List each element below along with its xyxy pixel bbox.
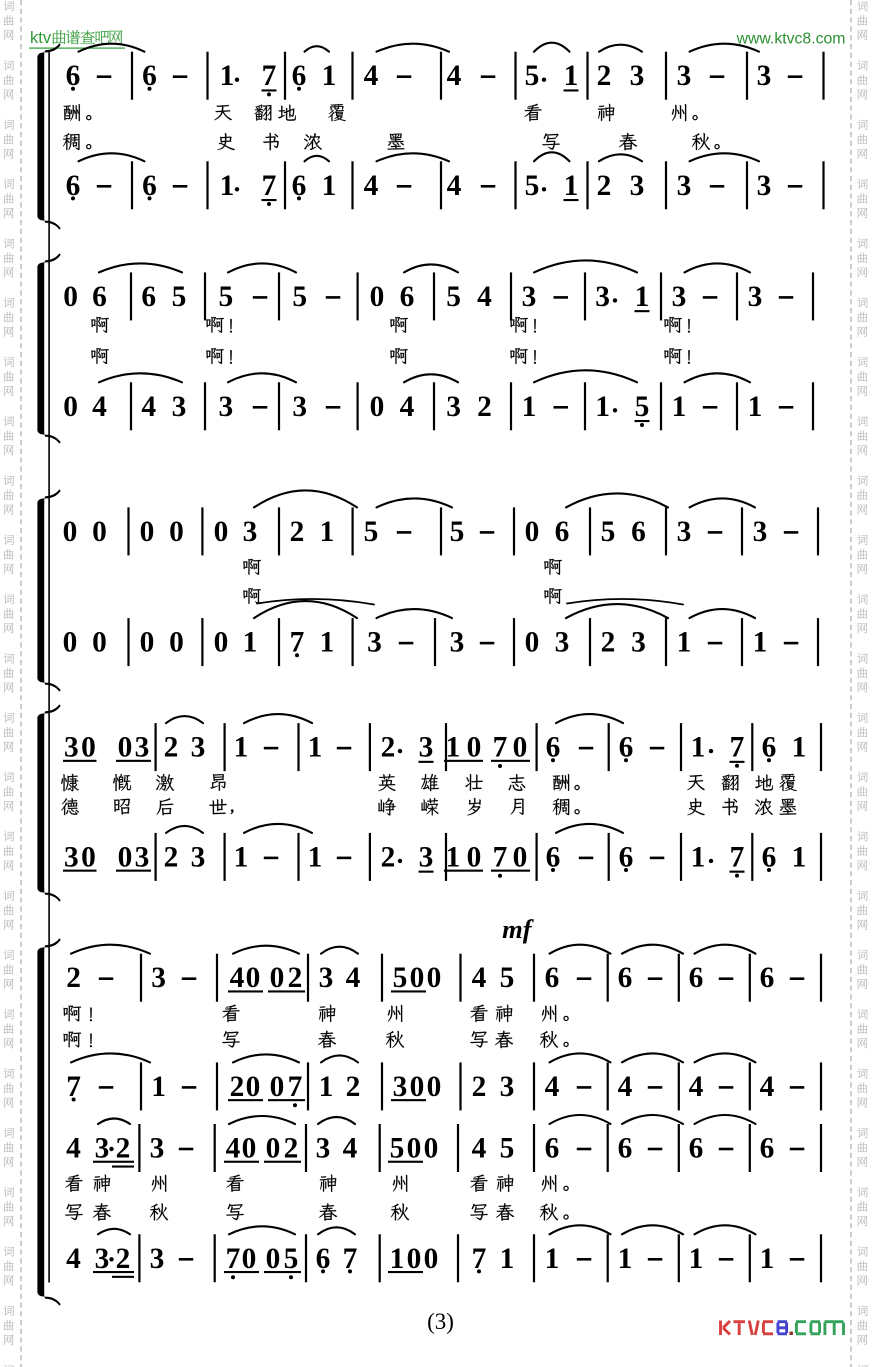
svg-text:3: 3 [319,962,334,994]
svg-text:3: 3 [753,516,768,548]
svg-text:(3): (3) [427,1309,454,1334]
svg-text:2: 2 [116,1243,131,1275]
svg-text:1: 1 [564,60,579,92]
svg-text:4: 4 [545,1071,560,1103]
svg-text:0: 0 [407,1133,422,1165]
svg-text:0: 0 [370,391,385,423]
svg-text:3: 3 [218,391,233,423]
svg-text:0: 0 [81,732,96,764]
svg-text:2: 2 [284,1133,299,1165]
svg-text:5: 5 [292,281,307,313]
svg-text:0: 0 [214,516,229,548]
svg-text:5: 5 [172,281,187,313]
svg-text:0: 0 [242,1243,257,1275]
svg-text:0: 0 [140,516,155,548]
svg-text:3: 3 [150,1243,165,1275]
svg-text:0: 0 [63,627,78,659]
svg-text:5: 5 [450,516,465,548]
svg-text:0: 0 [266,1243,281,1275]
svg-text:3: 3 [677,60,692,92]
svg-text:2: 2 [346,1071,361,1103]
svg-text:0: 0 [270,962,285,994]
svg-text:4: 4 [364,170,379,202]
svg-text:0: 0 [427,962,442,994]
svg-text:0: 0 [63,281,78,313]
svg-text:3: 3 [135,841,150,873]
svg-text:0: 0 [169,516,184,548]
svg-text:3: 3 [555,627,570,659]
svg-text:4: 4 [230,962,245,994]
svg-text:4: 4 [66,1133,81,1165]
svg-text:1: 1 [672,391,687,423]
svg-text:3: 3 [172,391,187,423]
svg-text:0: 0 [427,1071,442,1103]
svg-text:0: 0 [92,627,107,659]
svg-text:6: 6 [760,1133,775,1165]
svg-text:4: 4 [92,391,107,423]
svg-text:3: 3 [95,1133,110,1165]
svg-text:0: 0 [92,516,107,548]
svg-text:3: 3 [243,516,258,548]
svg-text:1: 1 [748,391,763,423]
svg-text:0: 0 [424,1243,439,1275]
svg-text:0: 0 [467,732,482,764]
svg-text:2: 2 [288,962,303,994]
svg-text:1: 1 [691,732,706,764]
svg-text:3: 3 [595,281,610,313]
svg-text:3: 3 [316,1133,331,1165]
svg-text:3: 3 [446,391,461,423]
svg-text:2: 2 [601,627,616,659]
svg-text:6: 6 [689,1133,704,1165]
svg-text:6: 6 [760,962,775,994]
svg-text:1: 1 [320,516,335,548]
svg-text:4: 4 [66,1243,81,1275]
svg-text:ktv: ktv [30,29,52,47]
svg-text:0: 0 [270,1071,285,1103]
svg-text:mf: mf [502,914,535,944]
svg-text:3: 3 [191,841,206,873]
svg-text:0: 0 [63,391,78,423]
svg-text:6: 6 [618,1133,633,1165]
svg-text:4: 4 [760,1071,775,1103]
svg-text:3: 3 [367,627,382,659]
svg-text:2: 2 [164,841,179,873]
svg-text:1: 1 [234,732,249,764]
svg-text:1: 1 [792,732,807,764]
svg-text:1: 1 [753,627,768,659]
svg-text:4: 4 [226,1133,241,1165]
svg-text:3: 3 [630,170,645,202]
svg-text:1: 1 [595,391,610,423]
svg-text:1: 1 [320,627,335,659]
svg-text:3: 3 [393,1071,408,1103]
svg-text:0: 0 [246,1071,261,1103]
svg-text:3: 3 [631,627,646,659]
svg-text:4: 4 [689,1071,704,1103]
svg-text:5: 5 [601,516,616,548]
svg-text:7: 7 [288,1071,303,1103]
svg-text:0: 0 [63,516,78,548]
svg-text:1: 1 [390,1243,405,1275]
svg-text:0: 0 [410,1071,425,1103]
svg-text:4: 4 [472,962,487,994]
svg-text:6: 6 [689,962,704,994]
svg-text:5: 5 [393,962,408,994]
svg-text:0: 0 [467,841,482,873]
svg-text:5: 5 [446,281,461,313]
svg-text:1: 1 [151,1071,166,1103]
svg-text:5: 5 [525,170,540,202]
svg-text:5: 5 [390,1133,405,1165]
svg-text:1: 1 [564,170,579,202]
svg-text:3: 3 [135,732,150,764]
svg-text:2: 2 [597,60,612,92]
svg-text:3: 3 [64,732,79,764]
svg-text:1: 1 [618,1243,633,1275]
svg-text:1: 1 [322,170,337,202]
svg-text:2: 2 [116,1133,131,1165]
svg-text:3: 3 [191,732,206,764]
svg-text:3: 3 [64,841,79,873]
svg-text:0: 0 [513,732,528,764]
svg-text:0: 0 [525,627,540,659]
svg-text:1: 1 [243,627,258,659]
svg-text:2: 2 [381,732,396,764]
svg-text:0: 0 [118,732,133,764]
svg-text:1: 1 [220,170,235,202]
svg-text:6: 6 [545,1133,560,1165]
svg-text:7: 7 [262,170,277,202]
svg-text:1: 1 [322,60,337,92]
svg-text:2: 2 [290,516,305,548]
svg-text:7: 7 [730,732,745,764]
svg-text:7: 7 [493,841,508,873]
svg-text:www.ktvc8.com: www.ktvc8.com [736,31,846,48]
svg-text:5: 5 [525,60,540,92]
svg-text:5: 5 [218,281,233,313]
svg-text:7: 7 [493,732,508,764]
svg-text:7: 7 [730,841,745,873]
svg-text:3: 3 [419,841,434,873]
svg-text:1: 1 [635,281,650,313]
svg-text:3: 3 [677,516,692,548]
svg-text:4: 4 [400,391,415,423]
svg-text:1: 1 [308,841,323,873]
svg-text:5: 5 [635,391,650,423]
svg-text:6: 6 [400,281,415,313]
svg-text:3: 3 [419,732,434,764]
svg-text:1: 1 [308,732,323,764]
svg-text:2: 2 [381,841,396,873]
svg-text:1: 1 [545,1243,560,1275]
svg-text:1: 1 [689,1243,704,1275]
svg-text:1: 1 [446,841,461,873]
svg-text:0: 0 [246,962,261,994]
svg-text:3: 3 [522,281,537,313]
svg-text:0: 0 [266,1133,281,1165]
svg-text:5: 5 [500,962,515,994]
svg-text:1: 1 [234,841,249,873]
svg-text:0: 0 [118,841,133,873]
svg-text:3: 3 [672,281,687,313]
svg-text:2: 2 [230,1071,245,1103]
svg-text:0: 0 [140,627,155,659]
svg-text:5: 5 [364,516,379,548]
svg-text:0: 0 [513,841,528,873]
svg-text:6: 6 [631,516,646,548]
svg-text:3: 3 [150,1133,165,1165]
svg-text:3: 3 [757,170,772,202]
svg-text:2: 2 [472,1071,487,1103]
svg-text:4: 4 [141,391,156,423]
svg-text:4: 4 [343,1133,358,1165]
svg-text:1: 1 [677,627,692,659]
svg-text:1: 1 [760,1243,775,1275]
svg-text:3: 3 [677,170,692,202]
svg-text:3: 3 [151,962,166,994]
svg-text:3: 3 [748,281,763,313]
svg-text:3: 3 [630,60,645,92]
svg-text:3: 3 [757,60,772,92]
svg-text:1: 1 [500,1243,515,1275]
svg-text:6: 6 [545,962,560,994]
svg-text:2: 2 [164,732,179,764]
svg-text:3: 3 [500,1071,515,1103]
svg-text:4: 4 [447,60,462,92]
svg-text:1: 1 [691,841,706,873]
svg-text:6: 6 [141,281,156,313]
svg-text:2: 2 [477,391,492,423]
svg-text:1: 1 [522,391,537,423]
svg-text:0: 0 [407,1243,422,1275]
svg-text:0: 0 [169,627,184,659]
svg-text:6: 6 [618,962,633,994]
svg-text:4: 4 [346,962,361,994]
svg-text:7: 7 [226,1243,241,1275]
svg-text:4: 4 [447,170,462,202]
svg-text:1: 1 [446,732,461,764]
svg-text:2: 2 [597,170,612,202]
svg-text:5: 5 [500,1133,515,1165]
svg-text:0: 0 [525,516,540,548]
svg-text:1: 1 [792,841,807,873]
svg-text:4: 4 [618,1071,633,1103]
svg-text:2: 2 [66,962,81,994]
svg-text:0: 0 [370,281,385,313]
svg-text:4: 4 [477,281,492,313]
svg-text:0: 0 [214,627,229,659]
svg-text:0: 0 [242,1133,257,1165]
svg-text:3: 3 [450,627,465,659]
svg-text:5: 5 [284,1243,299,1275]
svg-text:0: 0 [81,841,96,873]
svg-text:6: 6 [555,516,570,548]
svg-text:4: 4 [364,60,379,92]
svg-text:4: 4 [472,1133,487,1165]
svg-text:7: 7 [262,60,277,92]
svg-text:1: 1 [220,60,235,92]
svg-text:0: 0 [424,1133,439,1165]
svg-text:3: 3 [95,1243,110,1275]
svg-text:3: 3 [292,391,307,423]
svg-text:6: 6 [92,281,107,313]
svg-text:1: 1 [319,1071,334,1103]
svg-text:0: 0 [410,962,425,994]
